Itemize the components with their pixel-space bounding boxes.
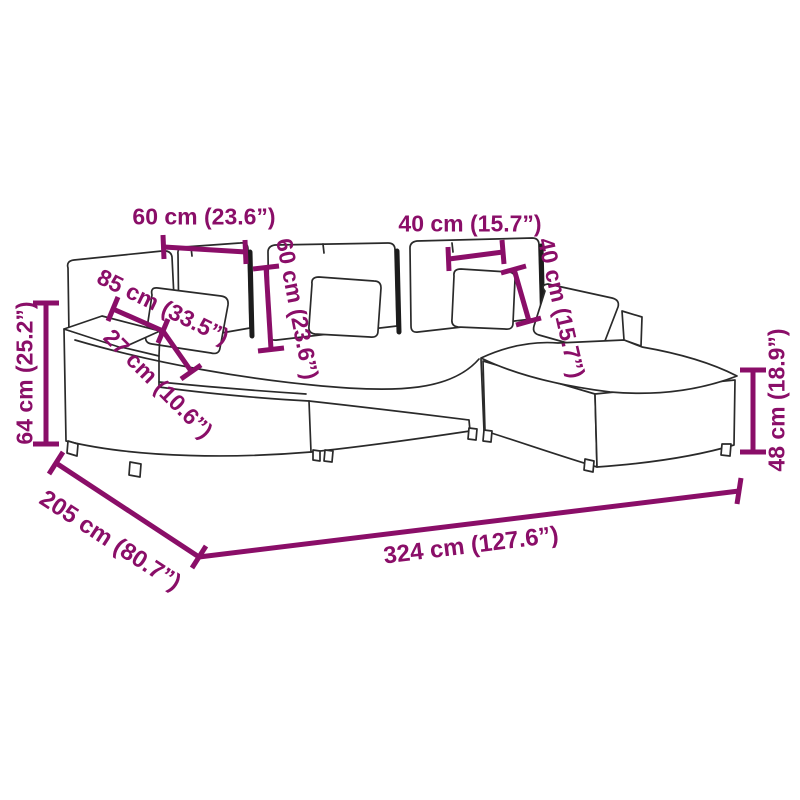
dimension-diagram: 60 cm (23.6”) 40 cm (15.7”) 60 cm (23.6”… xyxy=(0,0,800,800)
sofa-leg xyxy=(584,459,594,472)
throw-pillow-3 xyxy=(452,269,515,329)
sofa-leg xyxy=(721,444,731,456)
dim-label-back-cushion-width: 60 cm (23.6”) xyxy=(132,204,275,231)
sofa-leg xyxy=(129,462,141,477)
dim-label-pillow-width: 40 cm (15.7”) xyxy=(398,211,541,238)
sofa-leg xyxy=(483,430,492,442)
sofa-leg xyxy=(468,428,477,440)
sofa-leg xyxy=(67,441,78,456)
dim-label-ottoman-height: 48 cm (18.9”) xyxy=(764,328,791,471)
sofa-line-drawing xyxy=(0,0,800,800)
sofa-leg xyxy=(313,450,320,461)
dim-line-ottoman-height xyxy=(740,370,766,453)
sofa-group xyxy=(64,238,737,477)
throw-pillow-2 xyxy=(309,277,381,337)
sofa-leg xyxy=(324,450,333,462)
dim-label-seat-height: 64 cm (25.2”) xyxy=(12,301,39,444)
